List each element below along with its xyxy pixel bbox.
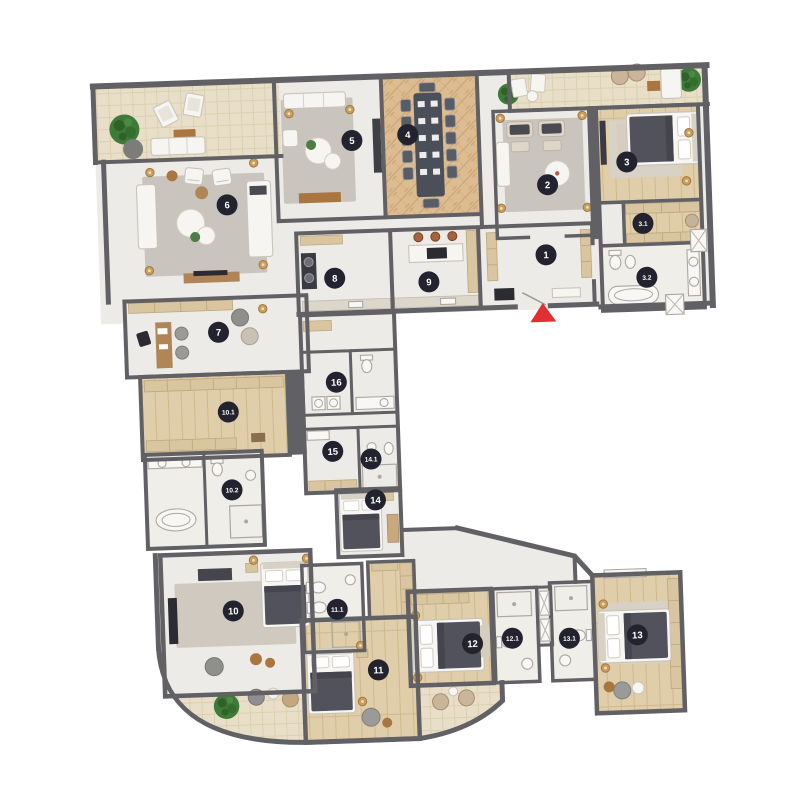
- svg-text:10.2: 10.2: [226, 487, 239, 494]
- sideboard: [299, 192, 341, 203]
- svg-text:12: 12: [467, 639, 478, 650]
- pendant-lamp-icon: [414, 233, 423, 242]
- sink-icon: [440, 298, 455, 305]
- svg-text:3.1: 3.1: [638, 221, 648, 228]
- vanity: [687, 249, 701, 295]
- bench: [617, 124, 627, 154]
- svg-text:6: 6: [224, 200, 230, 211]
- svg-text:9: 9: [426, 277, 432, 288]
- toilet-icon: [212, 463, 222, 476]
- lamp-icon: [146, 168, 155, 177]
- tv: [168, 598, 179, 644]
- page-background: 1 2 3 3.1 3.2 4 5 6 7 8 9 10 10.1 10.2 1…: [0, 0, 800, 800]
- bed: [626, 111, 700, 165]
- svg-text:11.1: 11.1: [331, 607, 344, 614]
- outdoor-sofa: [151, 137, 206, 156]
- svg-text:13.1: 13.1: [563, 635, 576, 642]
- svg-text:12.1: 12.1: [506, 635, 519, 642]
- chaise: [496, 142, 511, 186]
- svg-text:15: 15: [327, 447, 339, 458]
- toilet-icon: [362, 359, 372, 372]
- svg-text:7: 7: [216, 328, 222, 339]
- svg-text:2: 2: [545, 180, 551, 191]
- sofa: [283, 92, 345, 109]
- outdoor-bench: [661, 68, 682, 99]
- sofa: [136, 184, 157, 249]
- svg-text:14: 14: [370, 495, 382, 506]
- svg-text:13: 13: [632, 630, 643, 641]
- svg-text:16: 16: [331, 377, 342, 388]
- svg-text:11: 11: [373, 665, 384, 676]
- floor-plan: 1 2 3 3.1 3.2 4 5 6 7 8 9 10 10.1 10.2 1…: [0, 0, 800, 800]
- svg-text:3.2: 3.2: [642, 275, 652, 282]
- svg-text:3: 3: [624, 157, 630, 168]
- cooktop: [427, 247, 447, 259]
- toilet-icon: [610, 255, 621, 269]
- svg-text:10: 10: [228, 606, 239, 617]
- svg-text:8: 8: [332, 274, 338, 285]
- svg-text:14.1: 14.1: [365, 456, 378, 463]
- dining-table: [413, 92, 445, 197]
- svg-text:10.1: 10.1: [222, 409, 235, 416]
- bathtub: [608, 285, 659, 305]
